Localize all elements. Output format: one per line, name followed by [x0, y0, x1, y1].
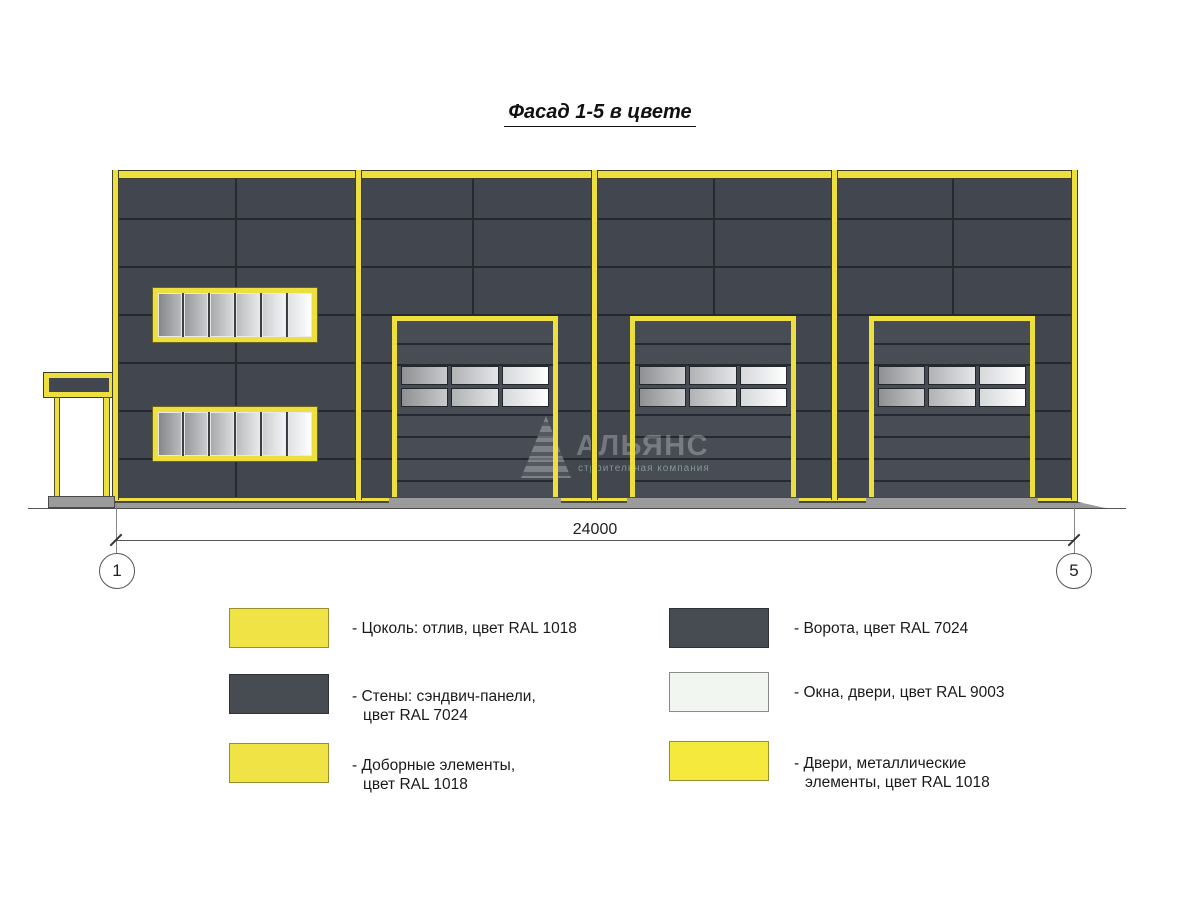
- legend-label-line: элементы, цвет RAL 1018: [794, 773, 990, 792]
- legend-color-swatch: [229, 674, 329, 714]
- legend-label-line: - Окна, двери, цвет RAL 9003: [794, 683, 1005, 702]
- legend-label-line: цвет RAL 1018: [352, 775, 515, 794]
- legend-label-line: - Ворота, цвет RAL 7024: [794, 619, 968, 638]
- dimension-label: 24000: [495, 521, 695, 539]
- legend-color-swatch: [669, 608, 769, 648]
- axis-marker-1: 1: [99, 553, 135, 589]
- window-pane: [158, 293, 182, 337]
- canopy-post-rear: [103, 397, 110, 500]
- legend-label: - Доборные элементы,цвет RAL 1018: [352, 756, 515, 794]
- extension-line-right: [1074, 504, 1075, 556]
- legend-item: - Ворота, цвет RAL 7024: [669, 608, 968, 648]
- legend-color-swatch: [669, 672, 769, 712]
- door-apron: [866, 497, 1038, 508]
- window-pane: [210, 412, 234, 456]
- door-apron: [627, 497, 799, 508]
- porch-apron: [48, 496, 115, 508]
- canopy-post-front: [54, 397, 60, 500]
- window-band-glazing: [158, 412, 312, 456]
- legend-label-line: - Доборные элементы,: [352, 756, 515, 775]
- legend-label: - Двери, металлическиеэлементы, цвет RAL…: [794, 754, 990, 792]
- facade-drawing: АЛЬЯНС строительная компания: [0, 0, 1200, 900]
- window-pane: [236, 293, 260, 337]
- window-pane: [262, 412, 286, 456]
- window-pane: [288, 293, 312, 337]
- legend-label-line: - Стены: сэндвич-панели,: [352, 687, 536, 706]
- garage-door-frame: [392, 316, 558, 500]
- legend-label-line: цвет RAL 7024: [352, 706, 536, 725]
- bay-divider-trim: [831, 170, 838, 500]
- corner-trim-right: [1071, 170, 1078, 500]
- window-pane: [288, 412, 312, 456]
- legend-label: - Окна, двери, цвет RAL 9003: [794, 683, 1005, 702]
- legend-color-swatch: [669, 741, 769, 781]
- drawing-sheet: Фасад 1-5 в цвете АЛЬЯНС строительная ко…: [0, 0, 1200, 900]
- window-pane: [236, 412, 260, 456]
- window-pane: [158, 412, 182, 456]
- bay-divider-trim: [355, 170, 362, 500]
- extension-line-left: [116, 504, 117, 556]
- axis-marker-5: 5: [1056, 553, 1092, 589]
- legend-color-swatch: [229, 608, 329, 648]
- window-pane: [184, 412, 208, 456]
- legend-item: - Стены: сэндвич-панели,цвет RAL 7024: [229, 674, 536, 714]
- garage-door-frame: [869, 316, 1035, 500]
- legend-item: - Окна, двери, цвет RAL 9003: [669, 672, 1005, 712]
- legend-label-line: - Цоколь: отлив, цвет RAL 1018: [352, 619, 577, 638]
- legend-label: - Стены: сэндвич-панели,цвет RAL 7024: [352, 687, 536, 725]
- canopy-fascia: [44, 373, 114, 397]
- window-pane: [210, 293, 234, 337]
- dimension-line: [116, 540, 1074, 541]
- legend-item: - Доборные элементы,цвет RAL 1018: [229, 743, 515, 783]
- legend-item: - Цоколь: отлив, цвет RAL 1018: [229, 608, 577, 648]
- legend-label-line: - Двери, металлические: [794, 754, 990, 773]
- legend-label: - Цоколь: отлив, цвет RAL 1018: [352, 619, 577, 638]
- corner-trim-left: [112, 170, 119, 500]
- garage-door-frame: [630, 316, 796, 500]
- window-pane: [184, 293, 208, 337]
- legend-color-swatch: [229, 743, 329, 783]
- legend-label: - Ворота, цвет RAL 7024: [794, 619, 968, 638]
- bay-divider-trim: [591, 170, 598, 500]
- window-band-glazing: [158, 293, 312, 337]
- window-pane: [262, 293, 286, 337]
- legend-item: - Двери, металлическиеэлементы, цвет RAL…: [669, 741, 990, 781]
- door-apron: [389, 497, 561, 508]
